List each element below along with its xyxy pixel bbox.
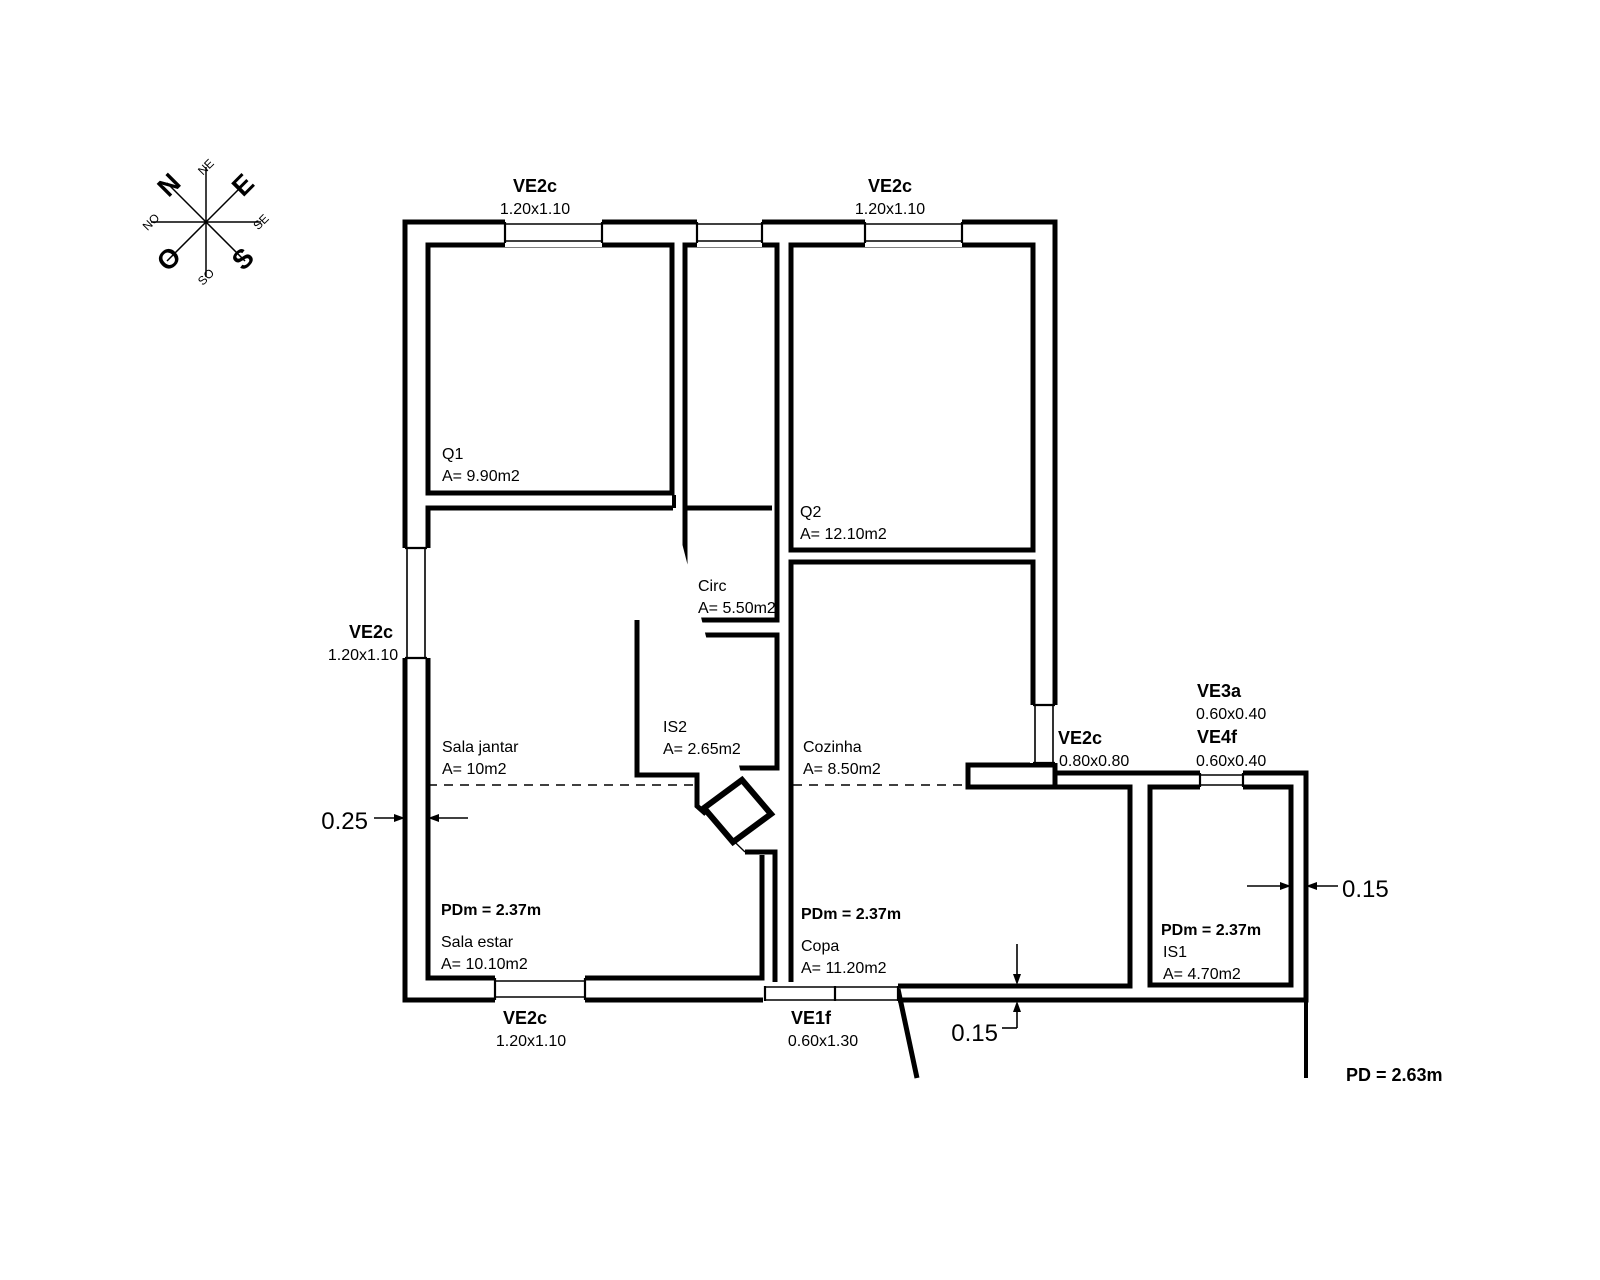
window-ve3a-ve4f — [1200, 770, 1243, 790]
compass-label-no: NO — [140, 211, 163, 234]
compass-label-ne: NE — [195, 156, 217, 178]
compass-rose: NESONESESONO — [140, 156, 272, 288]
label-ve1f-tag: VE1f — [791, 1008, 832, 1028]
label-room-salajantar: Sala jantar — [442, 739, 519, 756]
label-room-circ-area: A= 5.50m2 — [698, 600, 776, 617]
room-q2-outline — [791, 245, 1033, 550]
label-ve3a-tag: VE3a — [1197, 681, 1242, 701]
window-ve2c-north-west — [505, 218, 602, 247]
floor-plan-page: NESONESESONO VE2c1.20x1.10VE2c1.20x1.10V… — [0, 0, 1600, 1280]
label-room-q1-area: A= 9.90m2 — [442, 468, 520, 485]
window-ve2c-west — [401, 548, 432, 658]
window-ve2c-east — [1030, 705, 1059, 763]
label-ve1f-size: 0.60x1.30 — [788, 1033, 858, 1050]
room-q1-outline — [428, 245, 672, 493]
label-room-q2: Q2 — [800, 504, 821, 521]
label-ve2c-topleft-size: 1.20x1.10 — [500, 201, 570, 218]
wall-notch — [968, 765, 1055, 787]
label-room-q1: Q1 — [442, 446, 463, 463]
label-room-salaestar: Sala estar — [441, 934, 514, 951]
label-ve2c-left-size: 1.20x1.10 — [328, 647, 398, 664]
label-room-is2: IS2 — [663, 719, 687, 736]
compass-label-se: SE — [250, 211, 271, 232]
label-room-is1-area: A= 4.70m2 — [1163, 966, 1241, 983]
label-ve4f-size: 0.60x0.40 — [1196, 753, 1266, 770]
label-dim-south-wall: 0.15 — [951, 1020, 998, 1047]
label-ve2c-left-tag: VE2c — [349, 622, 393, 642]
label-room-q2-area: A= 12.10m2 — [800, 526, 887, 543]
label-dim-west-wall: 0.25 — [321, 808, 368, 835]
label-room-cozinha-area: A= 8.50m2 — [803, 761, 881, 778]
label-room-circ: Circ — [698, 578, 726, 595]
label-ve2c-topright-tag: VE2c — [868, 176, 912, 196]
label-room-salaestar-area: A= 10.10m2 — [441, 956, 528, 973]
label-dim-east-wall: 0.15 — [1342, 876, 1389, 903]
label-room-copa-area: A= 11.20m2 — [801, 960, 887, 977]
label-ve2c-topleft-tag: VE2c — [513, 176, 557, 196]
label-room-copa: Copa — [801, 938, 839, 955]
label-ve3a-size: 0.60x0.40 — [1196, 706, 1266, 723]
label-ve2c-bottom-tag: VE2c — [503, 1008, 547, 1028]
label-ve2c-east-size: 0.80x0.80 — [1059, 753, 1129, 770]
window-ve2c-south — [495, 975, 585, 1004]
compass-label-so: SO — [195, 266, 217, 288]
label-room-salajantar-area: A= 10m2 — [442, 761, 507, 778]
window-north-circ — [697, 218, 762, 247]
room-circ-outline — [685, 245, 777, 620]
window-ve2c-north-east — [865, 218, 962, 247]
label-ve2c-east-tag: VE2c — [1058, 728, 1102, 748]
label-room-is2-area: A= 2.65m2 — [663, 741, 741, 758]
label-pd-note: PD = 2.63m — [1346, 1065, 1443, 1085]
window-ve1f-and-entrance — [763, 982, 898, 1004]
walls — [405, 222, 1306, 1000]
label-ve2c-bottom-size: 1.20x1.10 — [496, 1033, 566, 1050]
label-room-cozinha: Cozinha — [803, 739, 862, 756]
label-pdm-is1: PDm = 2.37m — [1161, 922, 1261, 939]
floor-plan-drawing: NESONESESONO VE2c1.20x1.10VE2c1.20x1.10V… — [0, 0, 1600, 1280]
label-pdm-salaestar: PDm = 2.37m — [441, 902, 541, 919]
label-pdm-copa: PDm = 2.37m — [801, 906, 901, 923]
label-ve4f-tag: VE4f — [1197, 727, 1238, 747]
label-ve2c-topright-size: 1.20x1.10 — [855, 201, 925, 218]
label-room-is1: IS1 — [1163, 944, 1187, 961]
